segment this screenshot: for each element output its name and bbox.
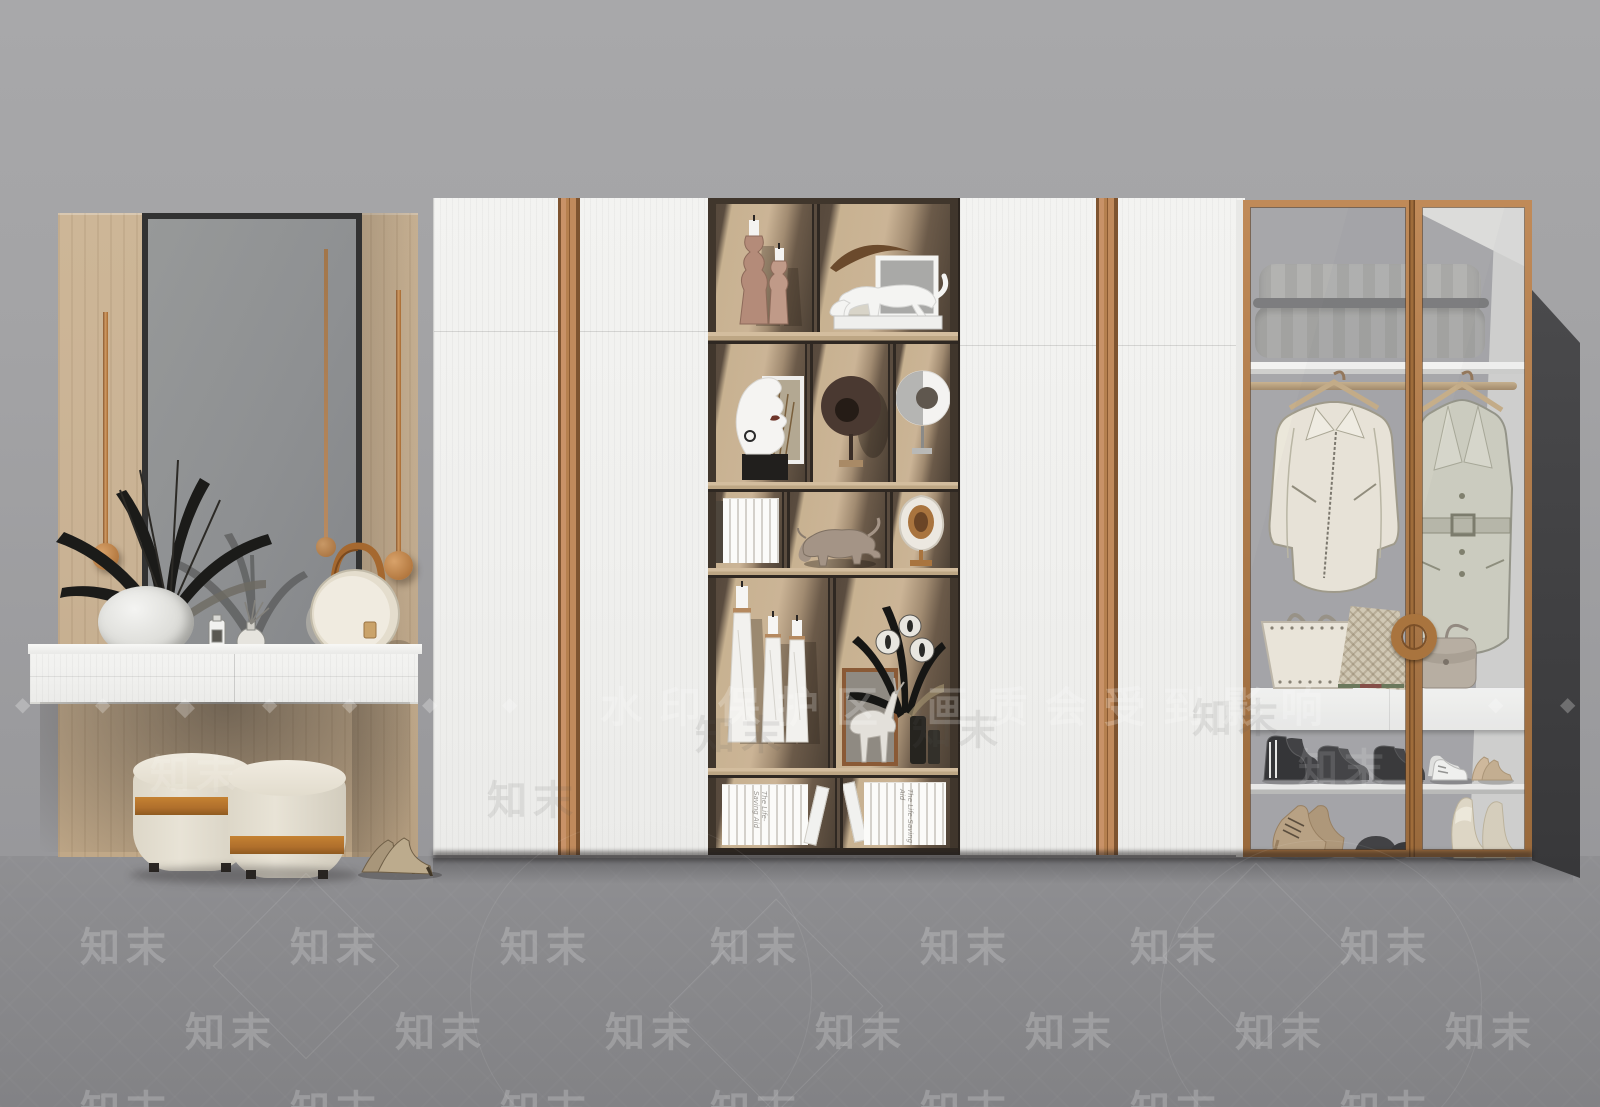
- shelf-divider: [782, 492, 790, 568]
- pouf-floor-shadow: [130, 866, 360, 884]
- book-row: The Life-Saving Aid: [864, 782, 946, 845]
- watermark-diamond: ◆: [502, 692, 517, 716]
- shelf-board: [708, 768, 958, 778]
- shelf-board: [708, 568, 958, 578]
- glass-door-right: [1415, 200, 1532, 857]
- wardrobe-cast-shadow: [1532, 290, 1580, 878]
- pouf-front: [228, 760, 346, 878]
- shelf-divider: [835, 778, 843, 848]
- ring-door-handle: [1391, 614, 1437, 660]
- panther-sculpture: [820, 204, 950, 334]
- watermark-diamond: ◆: [422, 692, 437, 716]
- copper-trim-left: [558, 198, 580, 855]
- book-row: [723, 498, 779, 563]
- mirror-sconce-reflection-rod: [324, 249, 328, 539]
- agate-decor: [893, 492, 950, 570]
- calla-blooms: [876, 615, 934, 662]
- book-spine-text: The Life-Saving Aid: [898, 789, 914, 845]
- display-shelving: The Life-Saving Aid The Life-Saving Aid: [708, 198, 958, 855]
- bull-sculpture: [790, 492, 885, 570]
- dark-ring-sculpture: [813, 344, 896, 484]
- watermark-diamond: ◆: [175, 692, 195, 722]
- vanity-drawers: [30, 654, 418, 704]
- watermark-diamond: ◆: [15, 692, 30, 716]
- shelf-divider: [885, 492, 893, 568]
- white-ring-sculpture: [896, 344, 950, 484]
- shelf-divider: [888, 344, 896, 482]
- shelf-divider: [828, 578, 836, 768]
- watermark-diamond: ◆: [1560, 692, 1575, 716]
- interior-render-scene: The Life-Saving Aid The Life-Saving Aid: [0, 0, 1600, 1107]
- book-row: The Life-Saving Aid: [722, 784, 808, 845]
- shelf-board: [708, 332, 958, 344]
- watermark-diamond: ◆: [262, 692, 277, 716]
- bottle: [928, 730, 940, 764]
- wall-sconce-right-rod: [396, 290, 401, 552]
- drawer-seam: [234, 654, 235, 702]
- door-gap-stile: [1409, 200, 1415, 857]
- vanity-top: [28, 644, 422, 654]
- glass-door-left: [1243, 200, 1413, 857]
- copper-trim-right: [1096, 198, 1118, 855]
- drawer-groove: [30, 676, 418, 677]
- shelf-divider: [805, 344, 813, 482]
- watermark-protect-text: 水印保护区 画质会受到影响: [600, 674, 1500, 735]
- candlestick-pair: [716, 204, 812, 334]
- shelf-board: [708, 482, 958, 492]
- watermark-diamond: ◆: [342, 692, 357, 716]
- book-spine-text: The Life-Saving Aid: [752, 791, 768, 845]
- shelf-divider: [812, 204, 820, 332]
- face-sculpture: [716, 344, 805, 484]
- closet-edge: [1236, 200, 1243, 857]
- watermark-diamond: ◆: [95, 692, 110, 716]
